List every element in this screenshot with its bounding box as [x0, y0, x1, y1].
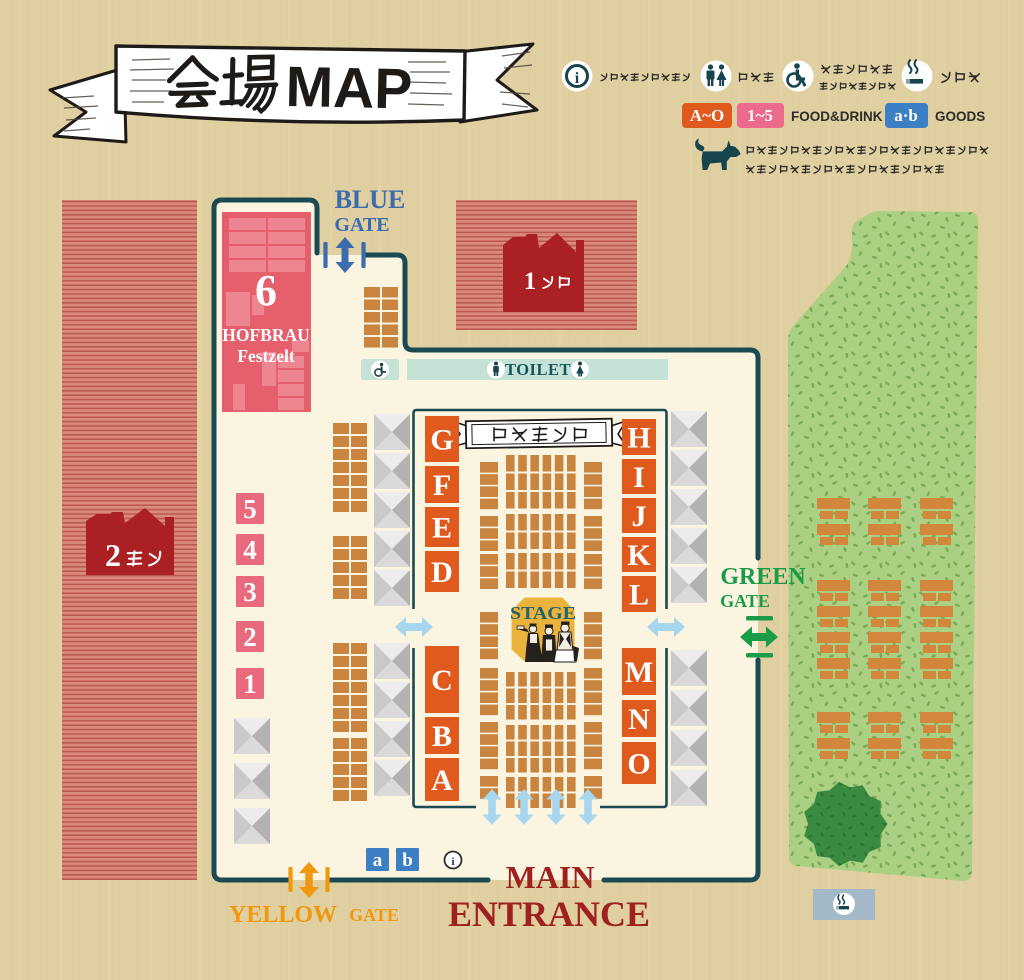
svg-text:H: H [627, 422, 650, 455]
svg-text:i: i [451, 856, 454, 868]
svg-text:O: O [627, 748, 650, 781]
svg-text:G: G [430, 424, 453, 457]
svg-text:MAIN: MAIN [506, 859, 595, 895]
svg-text:4: 4 [243, 535, 257, 565]
svg-text:ENTRANCE: ENTRANCE [448, 894, 650, 934]
svg-text:C: C [431, 664, 453, 697]
svg-text:YELLOW: YELLOW [229, 902, 337, 928]
svg-text:GOODS: GOODS [935, 109, 985, 124]
svg-text:3: 3 [243, 577, 257, 607]
svg-text:GATE: GATE [349, 905, 399, 925]
svg-text:M: M [625, 656, 653, 689]
svg-text:1: 1 [243, 669, 257, 699]
svg-text:BLUE: BLUE [335, 185, 406, 214]
svg-text:K: K [627, 539, 651, 572]
svg-text:HOFBRAU: HOFBRAU [222, 325, 310, 345]
svg-text:E: E [432, 512, 452, 545]
svg-text:GATE: GATE [334, 214, 389, 236]
svg-text:A~O: A~O [690, 106, 724, 125]
svg-text:a·b: a·b [894, 106, 918, 125]
svg-text:Festzelt: Festzelt [237, 346, 294, 366]
svg-text:2: 2 [243, 622, 257, 652]
svg-text:A: A [431, 764, 453, 797]
svg-text:STAGE: STAGE [510, 603, 576, 623]
svg-text:i: i [575, 70, 580, 87]
svg-text:a: a [373, 850, 383, 871]
svg-text:L: L [629, 579, 649, 612]
svg-text:FOOD&DRINK: FOOD&DRINK [791, 109, 883, 124]
svg-text:2: 2 [105, 537, 121, 573]
svg-text:J: J [632, 500, 647, 533]
svg-text:1~5: 1~5 [747, 106, 773, 125]
svg-text:N: N [628, 703, 650, 736]
svg-text:GATE: GATE [720, 591, 770, 611]
svg-text:B: B [432, 720, 452, 753]
svg-text:5: 5 [243, 494, 257, 524]
svg-text:D: D [431, 556, 453, 589]
svg-text:TOILET: TOILET [505, 360, 571, 379]
svg-text:1: 1 [524, 268, 537, 295]
svg-text:MAP: MAP [285, 55, 413, 122]
svg-text:I: I [633, 461, 645, 494]
svg-text:GREEN: GREEN [720, 564, 806, 590]
svg-text:F: F [433, 469, 451, 502]
svg-text:6: 6 [255, 266, 277, 315]
svg-text:b: b [402, 850, 413, 871]
